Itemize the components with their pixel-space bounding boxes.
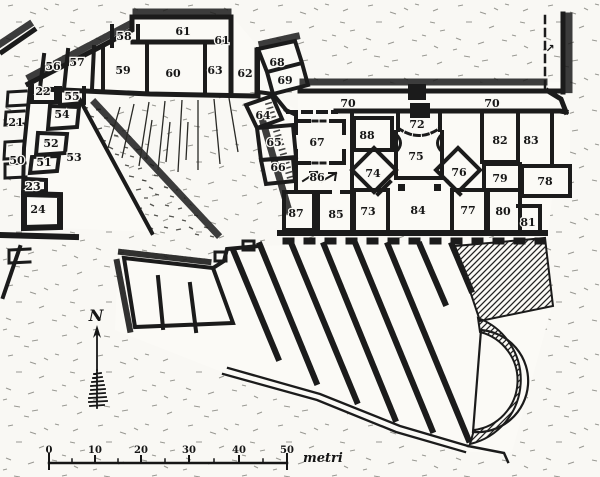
- scale-tick-label-30: 30: [182, 445, 196, 456]
- room-label-83: 83: [523, 134, 538, 147]
- portico-pier-north: [408, 84, 426, 100]
- hall-84-pier-1: [398, 184, 405, 191]
- room-label-51: 51: [36, 156, 51, 169]
- room-label-69: 69: [277, 74, 292, 87]
- room-label-61: 61: [214, 34, 229, 47]
- room-label-70: 70: [484, 97, 500, 110]
- room-label-73: 73: [360, 205, 375, 218]
- scale-unit-label: metri: [303, 451, 343, 466]
- room-label-63: 63: [207, 64, 222, 77]
- room-label-64: 64: [255, 109, 271, 122]
- room-label-81: 81: [520, 216, 535, 229]
- room-label-56: 56: [45, 60, 61, 73]
- room-label-53: 53: [66, 151, 81, 164]
- room-label-75: 75: [408, 150, 423, 163]
- room-label-58: 58: [116, 30, 132, 43]
- room-label-76: 76: [451, 166, 467, 179]
- room-label-59: 59: [115, 64, 130, 77]
- room-label-87: 87: [288, 207, 303, 220]
- room-label-88: 88: [359, 129, 375, 142]
- room-label-74: 74: [365, 167, 381, 180]
- scale-tick-label-20: 20: [134, 445, 148, 456]
- room-label-23: 23: [25, 180, 40, 193]
- scale-tick-label-40: 40: [232, 445, 246, 456]
- room-label-52: 52: [43, 137, 58, 150]
- room-label-57: 57: [69, 56, 84, 69]
- room-label-84: 84: [410, 204, 426, 217]
- north-label: N: [88, 306, 105, 325]
- room-label-22: 22: [35, 85, 50, 98]
- room-label-77: 77: [460, 204, 475, 217]
- underlay-portico: [298, 82, 566, 110]
- room-label-70: 70: [340, 97, 356, 110]
- room-label-55: 55: [64, 90, 79, 103]
- room-label-61: 61: [175, 25, 190, 38]
- site-plan-figure: ↗ N 01020304050 metri 212223245051525: [0, 0, 600, 477]
- room-label-62: 62: [237, 67, 252, 80]
- room-label-50: 50: [9, 154, 25, 167]
- scale-tick-label-50: 50: [280, 445, 294, 456]
- room-label-24: 24: [30, 203, 46, 216]
- room-label-65: 65: [266, 136, 281, 149]
- room-label-79: 79: [492, 172, 507, 185]
- room-label-54: 54: [54, 108, 70, 121]
- room-label-86: 86: [309, 171, 325, 184]
- room-label-66: 66: [270, 161, 286, 174]
- room-label-85: 85: [328, 208, 343, 221]
- site-plan-drawing: ↗ N 01020304050 metri 212223245051525: [0, 0, 600, 477]
- passage-arrow-icon: ↗: [545, 42, 554, 55]
- portico-south-wall: [336, 111, 566, 112]
- room-label-60: 60: [165, 67, 181, 80]
- scale-tick-label-10: 10: [88, 445, 102, 456]
- scale-tick-label-0: 0: [46, 445, 53, 456]
- room-label-78: 78: [537, 175, 553, 188]
- room-label-72: 72: [409, 118, 424, 131]
- hall-84-pier-2: [434, 184, 441, 191]
- room-label-21: 21: [8, 116, 23, 129]
- room-label-67: 67: [309, 136, 324, 149]
- room-label-80: 80: [495, 205, 511, 218]
- room-label-68: 68: [269, 56, 285, 69]
- room-label-82: 82: [492, 134, 507, 147]
